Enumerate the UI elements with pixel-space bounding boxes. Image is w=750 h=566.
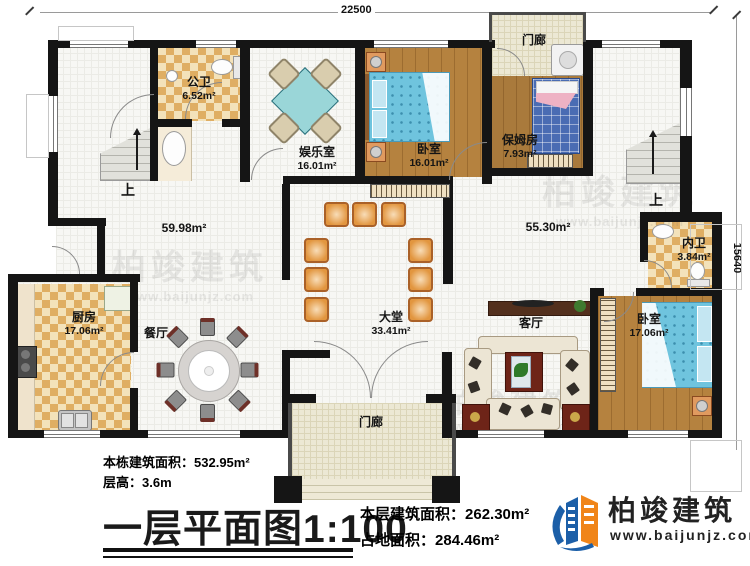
plant (574, 300, 586, 312)
pillow (697, 306, 712, 342)
wall (288, 394, 316, 403)
dimension-tick (25, 6, 34, 15)
wall (355, 45, 365, 184)
area-label-left-hall: 59.98m² (162, 222, 207, 236)
wall (363, 176, 449, 184)
wall (282, 184, 290, 280)
tv (512, 300, 554, 307)
stairs-arrow-head (649, 130, 657, 137)
building-logo-icon (548, 489, 604, 558)
room-name: 保姆房 (502, 133, 538, 147)
wall (583, 40, 593, 176)
room-name: 客厅 (519, 316, 543, 330)
toilet-bowl (211, 59, 233, 75)
title-underline (103, 548, 353, 552)
building-area-line: 本栋建筑面积：532.95m² (103, 452, 250, 471)
window (196, 40, 236, 48)
room-area: 16.01m² (409, 157, 448, 169)
land-area-value: 284.46m² (435, 532, 499, 549)
room-area: 7.93m² (502, 148, 538, 160)
dining-table-center (204, 366, 214, 376)
sink-basin (75, 413, 88, 428)
stairs-up-label: 上 (649, 192, 663, 208)
sofa-right (560, 350, 590, 410)
porch-wall (489, 12, 586, 15)
lobby-chair (408, 267, 433, 292)
nightstand (692, 396, 712, 416)
room-label-porch-top: 门廊 (522, 34, 546, 48)
floor-plan-canvas: 22500 15640 柏竣建筑 www.baijunjz.com 柏竣建筑 w… (0, 0, 750, 566)
lobby-chair (304, 238, 329, 263)
room-name: 门廊 (522, 33, 546, 47)
sink (166, 70, 178, 82)
wall (590, 288, 604, 296)
room-label-bedroom-top: 卧室16.01m² (409, 143, 448, 169)
room-area: 33.41m² (371, 325, 410, 337)
window (44, 430, 100, 438)
bay-window (370, 184, 450, 198)
room-label-private-bath: 内卫3.84m² (677, 237, 710, 263)
dining-chair (157, 363, 175, 378)
land-area-line: 占地面积：284.46m² (360, 529, 499, 550)
building-area-value: 532.95m² (194, 455, 250, 470)
window-sill (58, 26, 134, 41)
wall (8, 274, 140, 282)
room-name: 娱乐室 (299, 145, 335, 159)
title-text: 一层平面图 (103, 508, 303, 551)
end-table-decor (570, 412, 580, 422)
dining-chair (200, 404, 215, 422)
wall (150, 119, 192, 127)
wall (482, 168, 593, 176)
room-area: 17.06m² (64, 325, 103, 337)
porch-wall (489, 12, 492, 42)
wall (590, 288, 598, 438)
window-sill (690, 440, 742, 492)
window-sill (26, 94, 49, 158)
stairs-arrow (652, 136, 654, 174)
window (478, 430, 544, 438)
floor-area-value: 262.30m² (465, 506, 529, 523)
room-label-dining: 餐厅 (144, 327, 168, 341)
up-text: 上 (121, 182, 135, 198)
room-name: 厨房 (72, 310, 96, 324)
room-label-lobby: 大堂33.41m² (371, 311, 410, 337)
room-name: 卧室 (637, 312, 661, 326)
window (628, 430, 688, 438)
area-text: 55.30m² (526, 220, 571, 234)
pillow (372, 80, 387, 108)
wall (240, 45, 250, 182)
window (602, 40, 660, 48)
room-label-nanny-room: 保姆房7.93m² (502, 134, 538, 160)
wall (426, 394, 456, 403)
dining-chair (241, 363, 259, 378)
up-text: 上 (649, 192, 663, 208)
company-logo: 柏竣建筑 www.baijunjz.com (548, 487, 744, 561)
area-label-right-hall: 55.30m² (526, 221, 571, 235)
pillow (372, 110, 387, 138)
room-label-public-bath: 公卫6.52m² (182, 76, 215, 102)
pillow (536, 81, 578, 94)
floor-height-value: 3.6m (142, 475, 172, 490)
lobby-chair (304, 267, 329, 292)
porch-wall (583, 12, 586, 42)
room-label-bedroom-right: 卧室17.06m² (629, 313, 668, 339)
lobby-chair (324, 202, 349, 227)
plant (514, 363, 528, 377)
washing-machine-door (559, 51, 577, 69)
dining-chair (200, 318, 215, 336)
sink (652, 224, 674, 239)
land-area-label: 占地面积： (360, 532, 435, 549)
window (70, 40, 128, 48)
lobby-chair (381, 202, 406, 227)
room-name: 内卫 (682, 236, 706, 250)
nightstand (366, 52, 386, 72)
room-name: 门廊 (359, 415, 383, 429)
room-area: 17.06m² (629, 327, 668, 339)
room-label-porch-bottom: 门廊 (359, 416, 383, 430)
room-name: 公卫 (187, 75, 211, 89)
window (374, 40, 448, 48)
wall (130, 282, 138, 352)
window (148, 430, 240, 438)
wall (97, 218, 105, 282)
window (680, 88, 692, 136)
end-table-decor (470, 412, 480, 422)
room-label-kitchen: 厨房17.06m² (64, 311, 103, 337)
room-area: 16.01m² (297, 160, 336, 172)
room-label-living-room: 客厅 (519, 317, 543, 331)
sink-basin (61, 413, 74, 428)
wall (640, 212, 648, 262)
stove-burner (21, 350, 30, 359)
stairs-up-label: 上 (121, 182, 135, 198)
lobby-chair (408, 297, 433, 322)
lobby-chair (352, 202, 377, 227)
nightstand (366, 142, 386, 162)
logo-url: www.baijunjz.com (610, 527, 750, 543)
wall (8, 274, 18, 438)
kitchen-appliance (104, 286, 132, 311)
floor-height-label: 层高： (103, 475, 142, 490)
room-label-game-room: 娱乐室16.01m² (297, 146, 336, 172)
lobby-chair (408, 238, 433, 263)
room-name: 卧室 (417, 142, 441, 156)
wall (640, 212, 722, 222)
dimension-top-value: 22500 (338, 4, 375, 16)
floor-height-line: 层高：3.6m (103, 472, 172, 491)
room-name: 大堂 (379, 310, 403, 324)
building-area-label: 本栋建筑面积： (103, 455, 194, 470)
wall (222, 119, 250, 127)
room-name: 餐厅 (144, 326, 168, 340)
area-text: 59.98m² (162, 221, 207, 235)
floor-area-line: 本层建筑面积：262.30m² (360, 503, 529, 524)
pillow (697, 346, 712, 382)
porch-steps (292, 479, 452, 500)
window (48, 96, 58, 152)
porch-column (432, 476, 460, 503)
logo-name: 柏竣建筑 (608, 489, 736, 529)
floor-area-label: 本层建筑面积： (360, 506, 465, 523)
stove-burner (21, 363, 30, 372)
room-area: 3.84m² (677, 251, 710, 263)
dimension-tick (709, 5, 718, 14)
lobby-chair (304, 297, 329, 322)
vanity-sink (162, 131, 186, 166)
dimension-line-top (40, 12, 712, 13)
title-underline-2 (103, 556, 353, 558)
room-area: 6.52m² (182, 90, 215, 102)
stairs-arrow (136, 134, 138, 170)
